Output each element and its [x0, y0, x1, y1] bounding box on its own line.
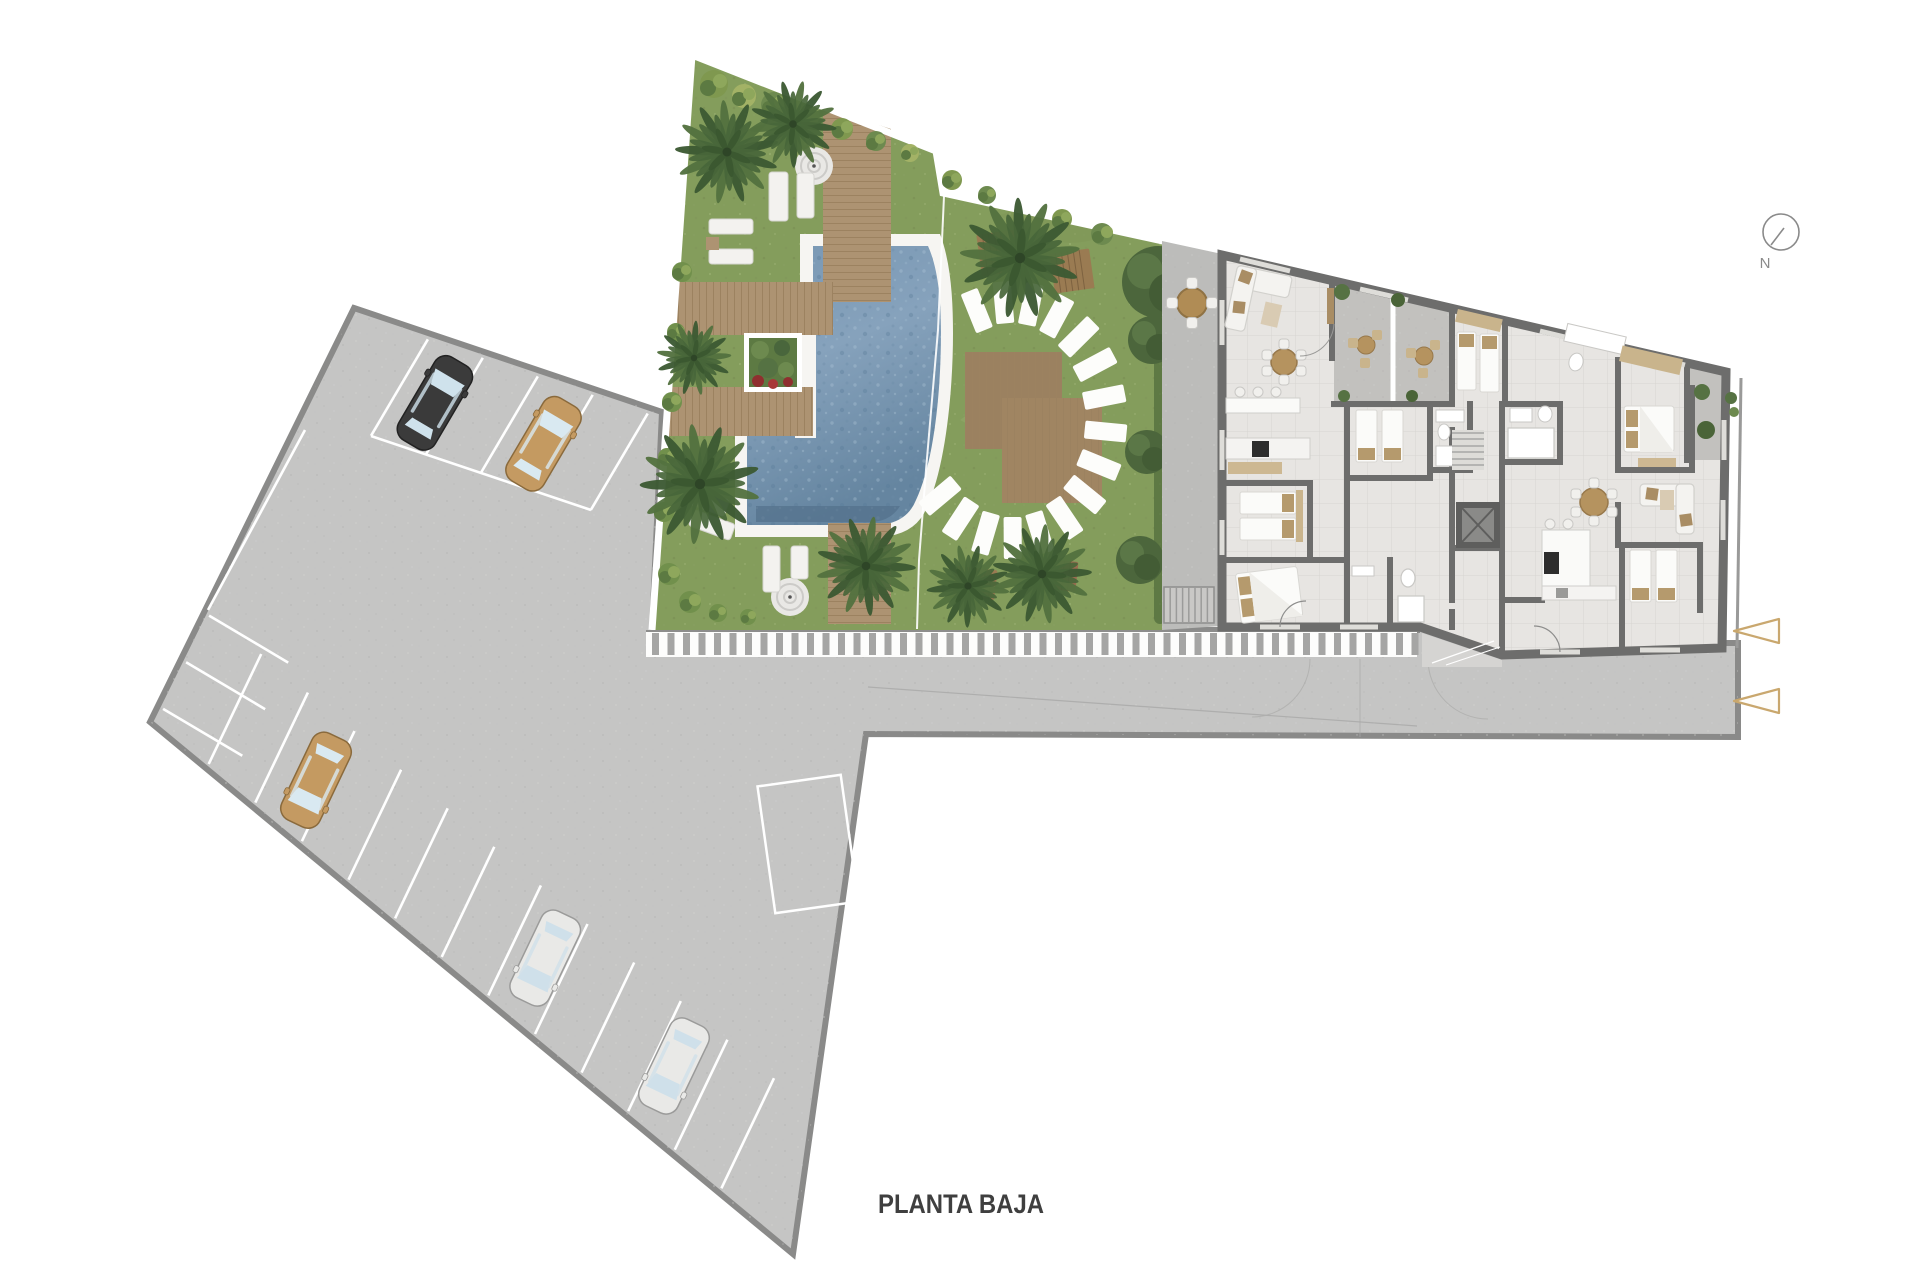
svg-text:PLANTA BAJA: PLANTA BAJA [878, 1189, 1044, 1219]
svg-text:N: N [1760, 255, 1771, 272]
